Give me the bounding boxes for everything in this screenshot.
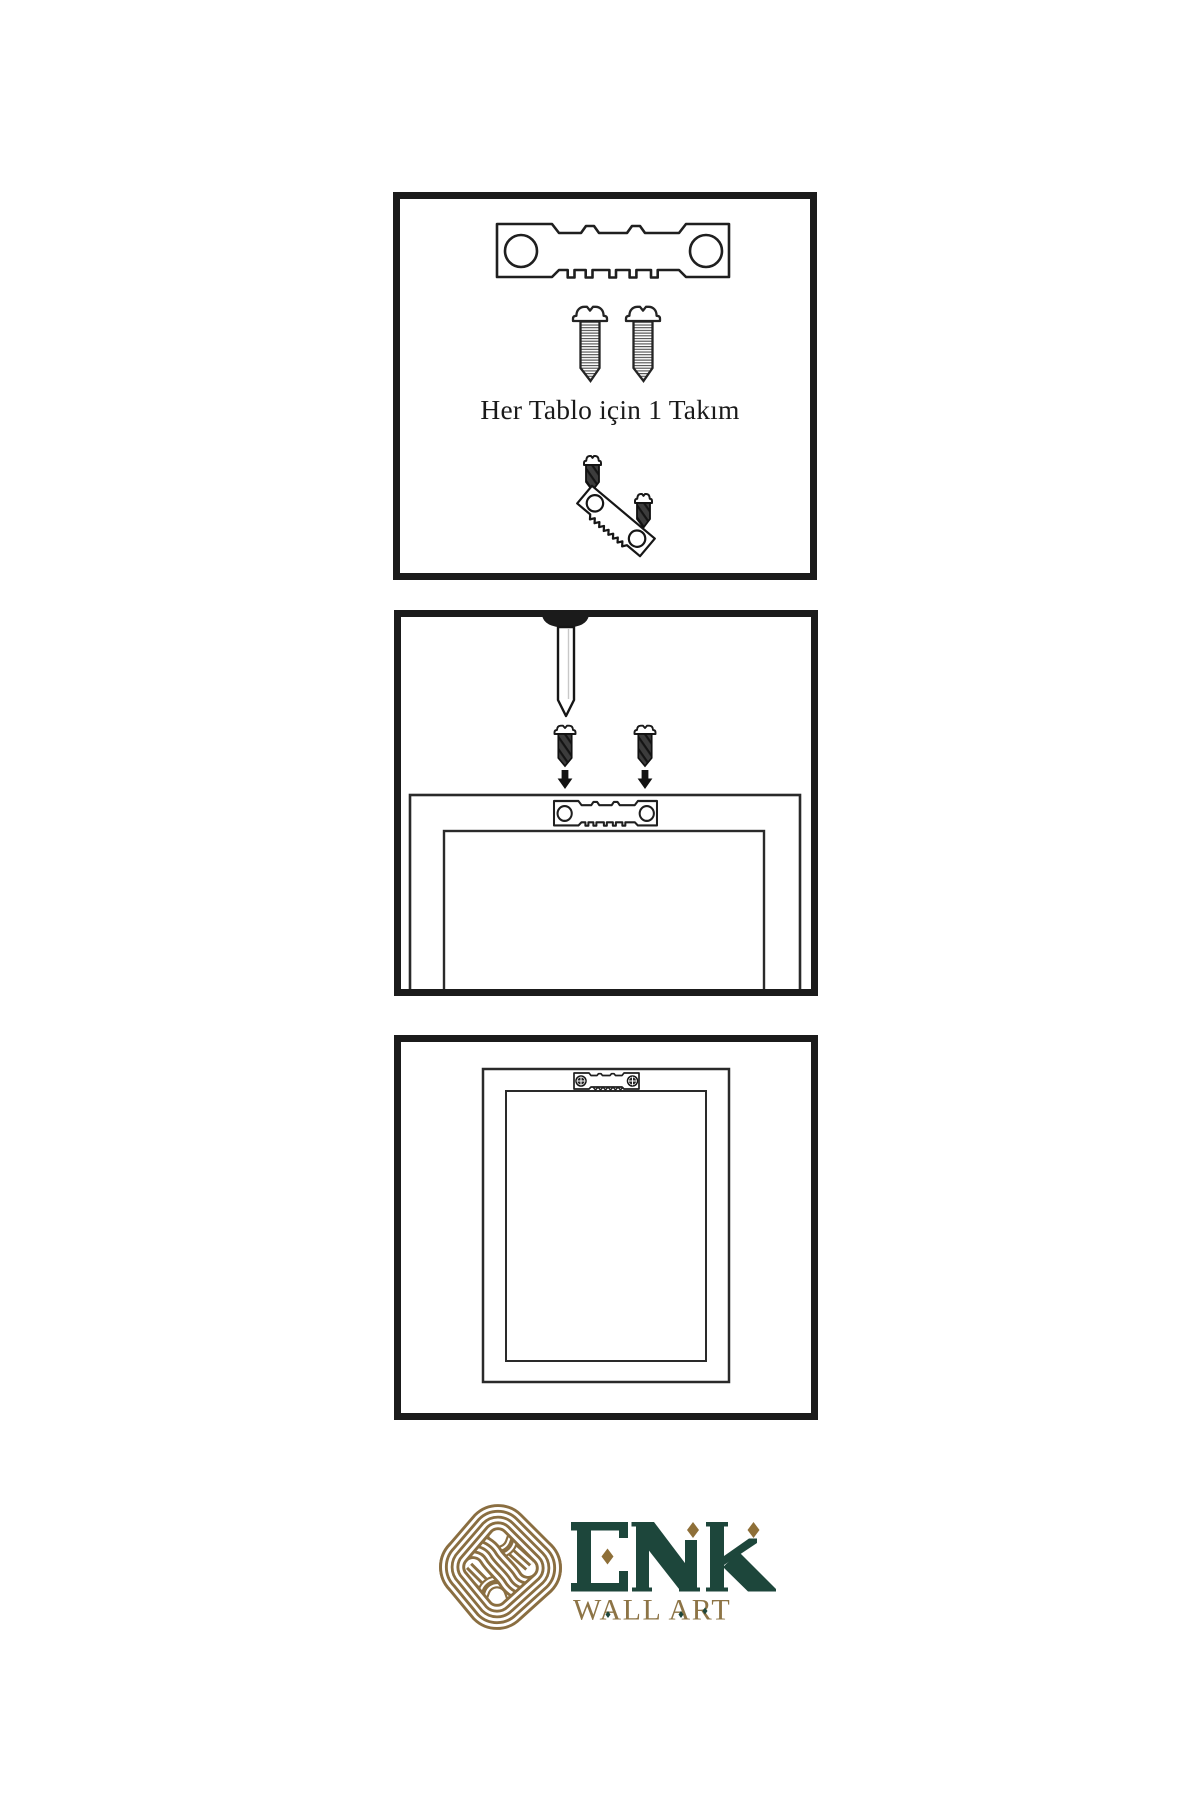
svg-text:WALL ART: WALL ART [573, 1594, 731, 1627]
svg-text:Her Tablo için 1 Takım: Her Tablo için 1 Takım [480, 394, 739, 425]
